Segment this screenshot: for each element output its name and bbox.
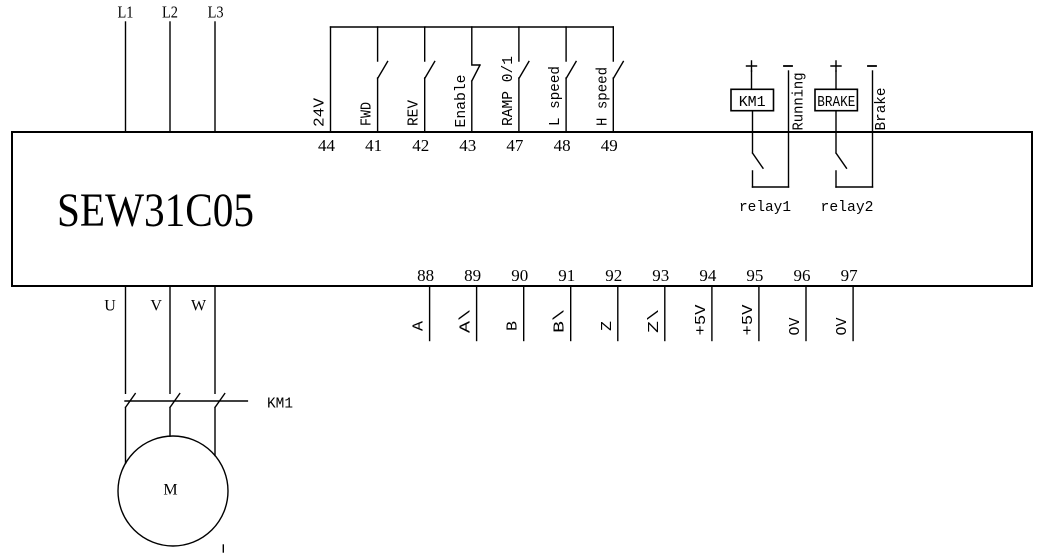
svg-text:41: 41 [365, 136, 382, 155]
svg-text:M: M [163, 482, 177, 499]
svg-text:B\: B\ [552, 309, 569, 333]
svg-text:Running: Running [791, 73, 808, 131]
svg-text:H speed: H speed [594, 67, 611, 126]
svg-text:89: 89 [464, 266, 481, 285]
svg-text:L1: L1 [118, 3, 134, 22]
svg-text:RAMP 0/1: RAMP 0/1 [500, 56, 517, 126]
svg-text:relay1: relay1 [739, 199, 791, 216]
svg-text:REV: REV [406, 100, 423, 126]
svg-text:V: V [150, 298, 162, 315]
svg-text:W: W [191, 298, 207, 315]
svg-text:+5V: +5V [740, 305, 757, 336]
svg-text:93: 93 [652, 266, 669, 285]
svg-text:OV: OV [787, 318, 804, 336]
svg-text:FWD: FWD [359, 102, 376, 126]
svg-text:OV: OV [834, 318, 851, 336]
svg-text:Enable: Enable [453, 75, 470, 128]
svg-text:A: A [411, 321, 428, 331]
svg-text:97: 97 [841, 266, 859, 285]
svg-text:94: 94 [699, 266, 717, 285]
svg-text:24V: 24V [312, 98, 329, 127]
svg-text:relay2: relay2 [821, 199, 874, 216]
svg-text:L speed: L speed [547, 66, 564, 126]
svg-text:42: 42 [412, 136, 429, 155]
svg-text:Z\: Z\ [646, 309, 663, 333]
svg-text:47: 47 [506, 136, 524, 155]
svg-text:90: 90 [511, 266, 528, 285]
svg-text:A\: A\ [458, 309, 475, 333]
svg-text:L3: L3 [208, 3, 224, 22]
svg-text:KM1: KM1 [739, 94, 766, 111]
svg-text:95: 95 [746, 266, 763, 285]
svg-text:44: 44 [318, 136, 336, 155]
svg-text:Brake: Brake [873, 88, 890, 131]
svg-text:U: U [104, 298, 116, 315]
svg-text:91: 91 [558, 266, 575, 285]
svg-text:Z: Z [599, 321, 616, 331]
svg-text:43: 43 [459, 136, 476, 155]
svg-text:BRAKE: BRAKE [817, 94, 855, 111]
svg-text:B: B [505, 321, 522, 331]
svg-text:SEW31C05: SEW31C05 [57, 184, 254, 237]
svg-text:48: 48 [554, 136, 571, 155]
svg-text:+5V: +5V [693, 305, 710, 336]
svg-text:96: 96 [794, 266, 811, 285]
svg-text:KM1: KM1 [267, 396, 293, 413]
svg-text:L2: L2 [162, 3, 178, 22]
svg-text:92: 92 [605, 266, 622, 285]
svg-text:49: 49 [601, 136, 618, 155]
svg-text:88: 88 [417, 266, 434, 285]
